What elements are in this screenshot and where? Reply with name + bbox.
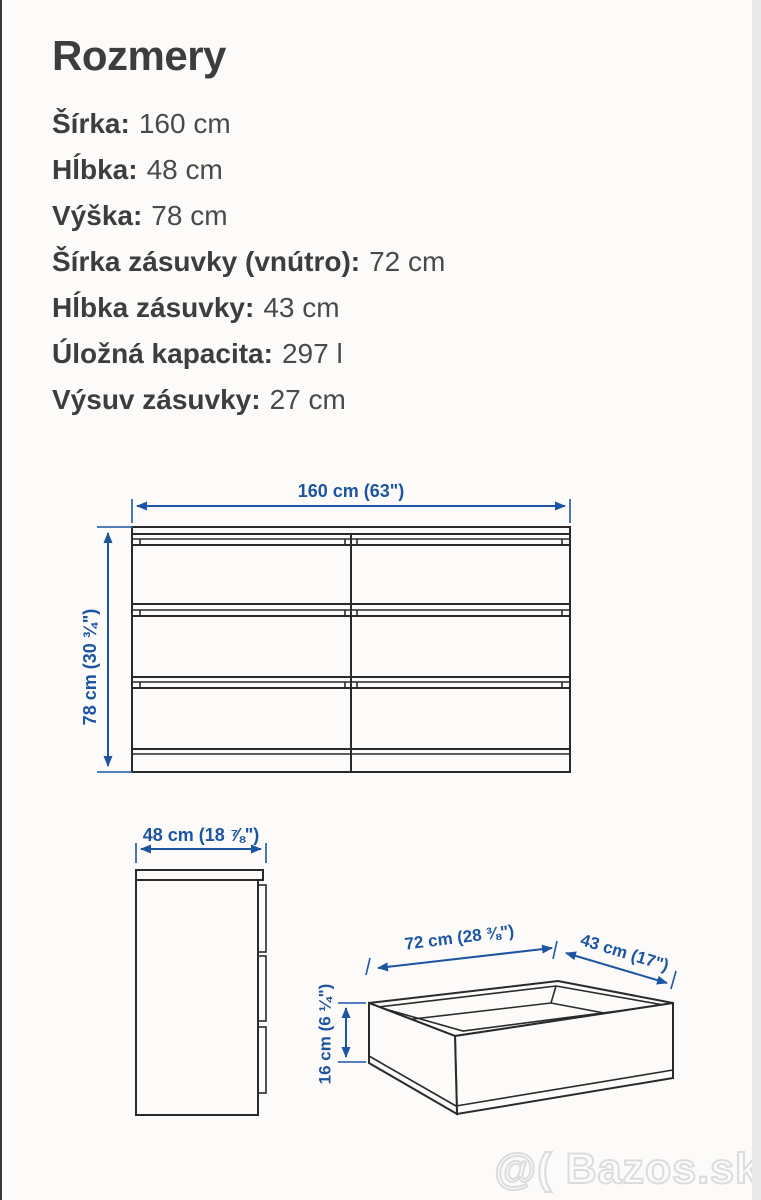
front-width-dimension-label: 160 cm (63") [298,481,405,501]
page-title: Rozmery [52,32,226,80]
dimensions-page: Rozmery Šírka:160 cm Hĺbka:48 cm Výška:7… [0,0,761,1200]
spec-value: 160 cm [139,108,231,139]
front-width-dimension: 160 cm (63") [132,481,570,523]
spec-label: Šírka: [52,108,130,139]
spec-row: Úložná kapacita:297 l [52,331,445,377]
drawer-width-dimension-label: 72 cm (28 ⅜") [404,921,516,953]
drawer-depth-dimension-label: 43 cm (17") [578,930,671,975]
side-view-drawing [136,870,266,1115]
spec-label: Výška: [52,200,142,231]
spec-label: Hĺbka: [52,154,138,185]
spec-value: 43 cm [263,292,339,323]
drawer-3d-drawing [369,981,673,1114]
spec-label: Hĺbka zásuvky: [52,292,254,323]
front-view-drawing [132,527,570,772]
spec-row: Výška:78 cm [52,193,445,239]
spec-value: 72 cm [369,246,445,277]
spec-label: Úložná kapacita: [52,338,273,369]
front-height-dimension: 78 cm (30 ¾") [80,527,133,772]
spec-label: Výsuv zásuvky: [52,384,261,415]
spec-value: 48 cm [147,154,223,185]
spec-row: Hĺbka:48 cm [52,147,445,193]
spec-row: Šírka zásuvky (vnútro):72 cm [52,239,445,285]
side-depth-dimension: 48 cm (18 ⅞") [136,825,266,863]
drawer-width-dimension: 72 cm (28 ⅜") [366,921,557,975]
spec-value: 297 l [282,338,343,369]
scrollbar-track[interactable] [752,0,761,1200]
front-height-dimension-label: 78 cm (30 ¾") [80,609,100,726]
spec-label: Šírka zásuvky (vnútro): [52,246,360,277]
spec-row: Hĺbka zásuvky:43 cm [52,285,445,331]
drawer-depth-dimension: 43 cm (17") [566,930,676,989]
spec-row: Šírka:160 cm [52,101,445,147]
spec-value: 27 cm [270,384,346,415]
side-depth-dimension-label: 48 cm (18 ⅞") [143,825,260,845]
watermark: @( Bazos.sk [494,1145,760,1194]
spec-row: Výsuv zásuvky:27 cm [52,377,445,423]
spec-value: 78 cm [151,200,227,231]
drawer-height-dimension-label: 16 cm (6 ¼") [316,984,335,1085]
drawer-height-dimension: 16 cm (6 ¼") [316,984,367,1085]
measurement-diagram: 160 cm (63") 78 cm (30 ¾") 48 cm (18 ⅞") [0,440,761,1140]
dimensions-list: Šírka:160 cm Hĺbka:48 cm Výška:78 cm Šír… [52,101,445,423]
